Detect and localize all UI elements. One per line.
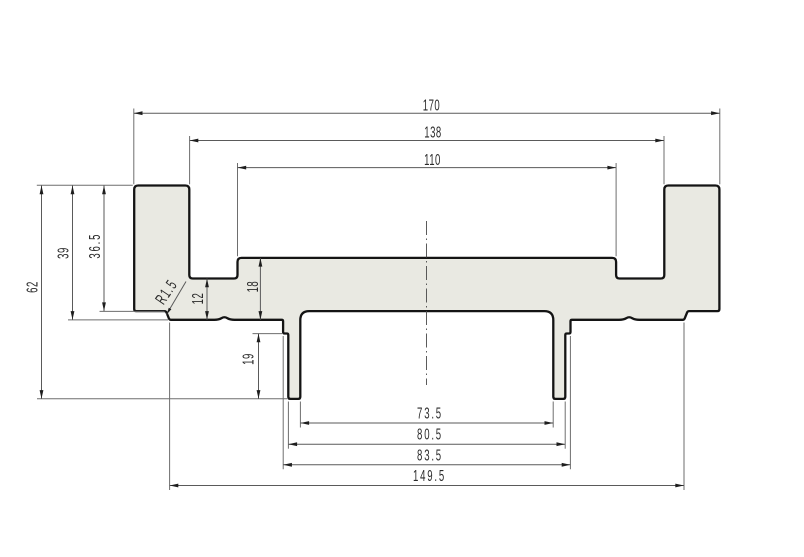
svg-text:80.5: 80.5 xyxy=(417,425,443,443)
svg-text:18: 18 xyxy=(243,281,261,293)
svg-text:73.5: 73.5 xyxy=(417,404,443,422)
svg-text:36.5: 36.5 xyxy=(85,233,103,259)
svg-text:19: 19 xyxy=(239,353,257,365)
svg-text:83.5: 83.5 xyxy=(417,446,443,464)
svg-text:12: 12 xyxy=(188,293,206,305)
svg-text:110: 110 xyxy=(424,150,441,168)
svg-text:39: 39 xyxy=(54,247,72,259)
svg-text:62: 62 xyxy=(23,281,41,293)
svg-text:170: 170 xyxy=(423,96,440,114)
svg-text:138: 138 xyxy=(424,123,441,141)
svg-text:149.5: 149.5 xyxy=(413,466,446,484)
